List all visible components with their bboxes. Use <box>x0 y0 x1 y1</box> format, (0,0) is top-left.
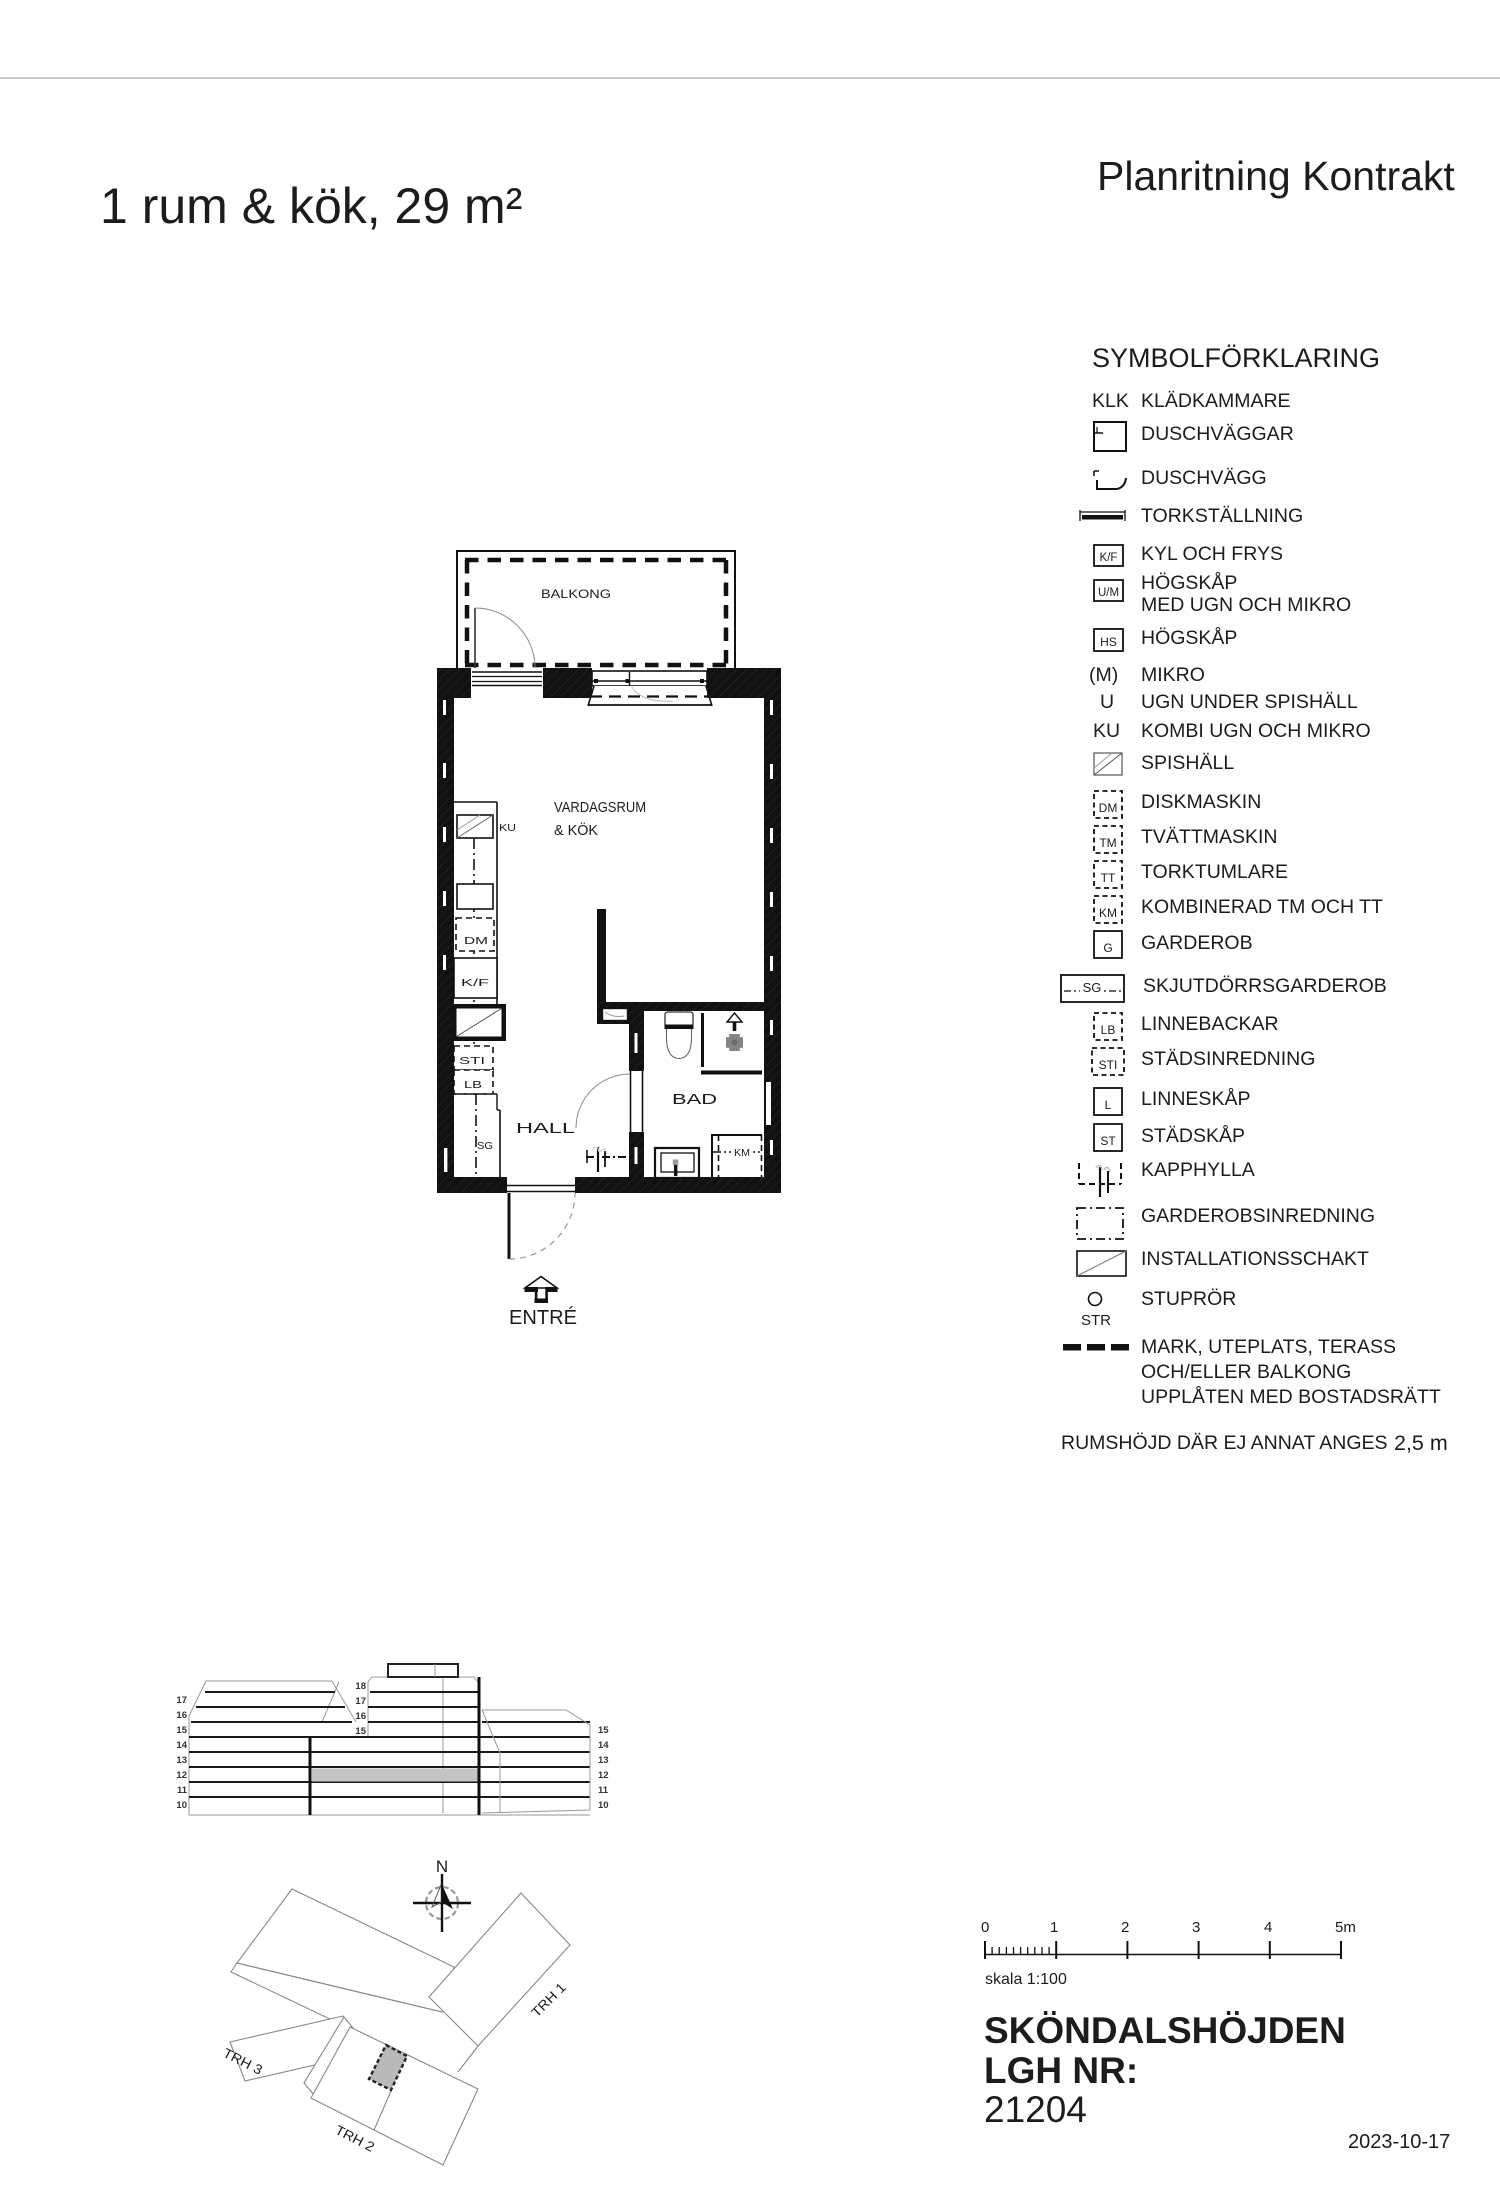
svg-text:TM: TM <box>1099 836 1116 850</box>
svg-text:DM: DM <box>464 935 488 947</box>
svg-text:U: U <box>1100 691 1114 713</box>
svg-text:OCH/ELLER BALKONG: OCH/ELLER BALKONG <box>1141 1361 1351 1383</box>
svg-text:SPISHÄLL: SPISHÄLL <box>1141 752 1234 774</box>
svg-text:STÄDSINREDNING: STÄDSINREDNING <box>1141 1048 1315 1070</box>
svg-text:STÄDSKÅP: STÄDSKÅP <box>1141 1124 1245 1147</box>
svg-text:SYMBOLFÖRKLARING: SYMBOLFÖRKLARING <box>1092 343 1380 373</box>
svg-text:12: 12 <box>598 1770 609 1781</box>
svg-text:DM: DM <box>1099 801 1118 815</box>
svg-text:LGH NR:: LGH NR: <box>984 2050 1138 2091</box>
svg-text:HALL: HALL <box>516 1120 575 1137</box>
svg-text:INSTALLATIONSSCHAKT: INSTALLATIONSSCHAKT <box>1141 1248 1369 1270</box>
svg-text:U/M: U/M <box>1098 587 1119 599</box>
svg-text:17: 17 <box>355 1696 366 1707</box>
svg-text:LB: LB <box>464 1079 482 1091</box>
svg-text:16: 16 <box>355 1711 366 1722</box>
svg-text:TRH 1: TRH 1 <box>529 1980 569 2020</box>
svg-text:KOMBINERAD TM OCH TT: KOMBINERAD TM OCH TT <box>1141 896 1383 918</box>
svg-text:GARDEROB: GARDEROB <box>1141 932 1253 954</box>
svg-text:& KÖK: & KÖK <box>554 821 598 839</box>
svg-text:DUSCHVÄGGAR: DUSCHVÄGGAR <box>1141 423 1294 445</box>
svg-text:3: 3 <box>1192 1919 1200 1936</box>
svg-text:MIKRO: MIKRO <box>1141 664 1205 686</box>
svg-text:2,5 m: 2,5 m <box>1394 1431 1448 1455</box>
svg-text:STI: STI <box>459 1055 485 1067</box>
svg-text:LINNEBACKAR: LINNEBACKAR <box>1141 1013 1279 1035</box>
svg-text:DUSCHVÄGG: DUSCHVÄGG <box>1141 467 1267 489</box>
svg-text:10: 10 <box>176 1800 187 1811</box>
svg-text:13: 13 <box>176 1755 187 1766</box>
svg-text:UPPLÅTEN MED BOSTADSRÄTT: UPPLÅTEN MED BOSTADSRÄTT <box>1141 1385 1441 1408</box>
svg-text:K/F: K/F <box>1100 552 1118 564</box>
svg-text:TVÄTTMASKIN: TVÄTTMASKIN <box>1141 826 1278 848</box>
svg-text:GARDEROBSINREDNING: GARDEROBSINREDNING <box>1141 1205 1375 1227</box>
svg-text:MARK, UTEPLATS, TERASS: MARK, UTEPLATS, TERASS <box>1141 1336 1396 1358</box>
svg-text:15: 15 <box>598 1725 609 1736</box>
svg-text:STR: STR <box>1081 1312 1111 1329</box>
svg-text:2: 2 <box>1121 1919 1129 1936</box>
svg-text:SKÖNDALSHÖJDEN: SKÖNDALSHÖJDEN <box>984 2010 1346 2051</box>
svg-text:11: 11 <box>598 1785 609 1796</box>
svg-text:KLK: KLK <box>1092 390 1129 412</box>
svg-text:TT: TT <box>1101 871 1116 885</box>
svg-text:BALKONG: BALKONG <box>541 587 611 601</box>
svg-text:DISKMASKIN: DISKMASKIN <box>1141 791 1261 813</box>
svg-text:(M): (M) <box>1089 664 1118 686</box>
svg-text:ENTRÉ: ENTRÉ <box>509 1306 577 1329</box>
svg-text:K/F: K/F <box>461 977 489 989</box>
svg-text:16: 16 <box>176 1710 187 1721</box>
svg-text:SG: SG <box>1083 980 1102 995</box>
svg-text:5m: 5m <box>1335 1919 1356 1936</box>
svg-text:VARDAGSRUM: VARDAGSRUM <box>554 799 646 816</box>
svg-text:LINNESKÅP: LINNESKÅP <box>1141 1087 1250 1110</box>
svg-text:17: 17 <box>176 1695 187 1706</box>
svg-text:L: L <box>1105 1098 1112 1112</box>
svg-text:KM: KM <box>1099 906 1117 920</box>
svg-text:2023-10-17: 2023-10-17 <box>1348 2131 1450 2153</box>
svg-text:11: 11 <box>177 1785 188 1796</box>
svg-text:12: 12 <box>176 1770 187 1781</box>
svg-text:13: 13 <box>598 1755 609 1766</box>
svg-text:ST: ST <box>1100 1134 1116 1148</box>
svg-text:15: 15 <box>355 1726 366 1737</box>
svg-text:21204: 21204 <box>984 2089 1087 2130</box>
svg-text:RUMSHÖJD DÄR EJ ANNAT ANGES: RUMSHÖJD DÄR EJ ANNAT ANGES <box>1061 1432 1388 1454</box>
svg-text:STUPRÖR: STUPRÖR <box>1141 1288 1236 1310</box>
svg-text:N: N <box>436 1857 448 1876</box>
svg-text:14: 14 <box>598 1740 609 1751</box>
svg-text:Planritning Kontrakt: Planritning Kontrakt <box>1097 153 1455 199</box>
svg-text:KAPPHYLLA: KAPPHYLLA <box>1141 1159 1255 1181</box>
svg-text:UGN UNDER SPISHÄLL: UGN UNDER SPISHÄLL <box>1141 691 1358 713</box>
svg-text:KOMBI UGN OCH MIKRO: KOMBI UGN OCH MIKRO <box>1141 720 1371 742</box>
svg-text:14: 14 <box>176 1740 187 1751</box>
svg-text:18: 18 <box>355 1681 366 1692</box>
svg-text:KU: KU <box>1093 720 1120 742</box>
svg-text:LB: LB <box>1101 1023 1116 1037</box>
svg-text:15: 15 <box>176 1725 187 1736</box>
svg-text:G: G <box>1103 941 1112 955</box>
svg-text:TORKSTÄLLNING: TORKSTÄLLNING <box>1141 505 1303 527</box>
svg-text:KU: KU <box>499 822 516 834</box>
svg-text:KM: KM <box>734 1147 750 1159</box>
svg-text:BAD: BAD <box>672 1091 717 1108</box>
svg-text:0: 0 <box>981 1919 989 1936</box>
svg-text:10: 10 <box>598 1800 609 1811</box>
svg-text:skala 1:100: skala 1:100 <box>985 1971 1067 1988</box>
svg-text:TORKTUMLARE: TORKTUMLARE <box>1141 861 1288 883</box>
svg-text:HÖGSKÅP: HÖGSKÅP <box>1141 571 1237 594</box>
svg-text:SG: SG <box>477 1140 493 1152</box>
svg-text:MED UGN OCH MIKRO: MED UGN OCH MIKRO <box>1141 594 1351 616</box>
svg-text:HS: HS <box>1100 635 1117 649</box>
svg-text:1 rum & kök, 29 m²: 1 rum & kök, 29 m² <box>100 178 522 234</box>
svg-text:STI: STI <box>1099 1058 1118 1072</box>
svg-text:1: 1 <box>1050 1919 1058 1936</box>
svg-text:SKJUTDÖRRSGARDEROB: SKJUTDÖRRSGARDEROB <box>1143 975 1387 997</box>
svg-text:4: 4 <box>1264 1919 1272 1936</box>
svg-text:KLÄDKAMMARE: KLÄDKAMMARE <box>1141 390 1291 412</box>
svg-text:KYL OCH FRYS: KYL OCH FRYS <box>1141 543 1283 565</box>
svg-text:HÖGSKÅP: HÖGSKÅP <box>1141 626 1237 649</box>
